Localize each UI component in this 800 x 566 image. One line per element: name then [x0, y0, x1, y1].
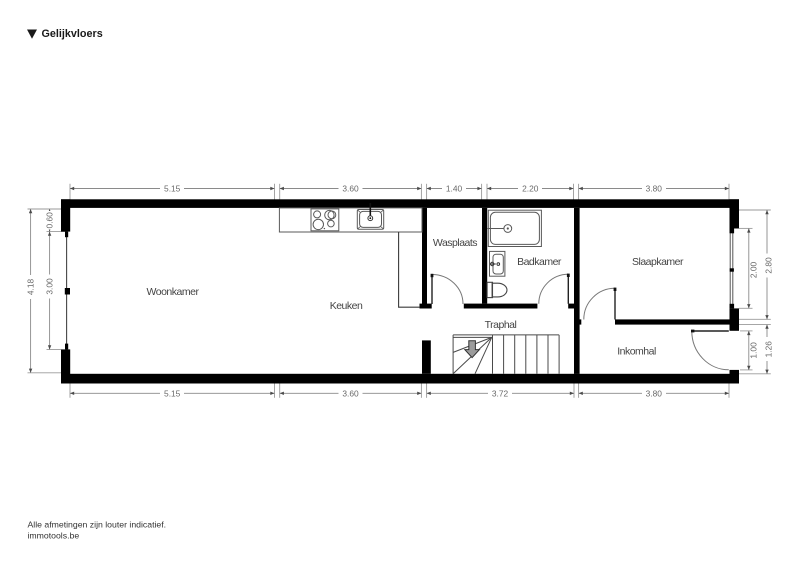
- svg-text:3.80: 3.80: [646, 184, 663, 194]
- svg-text:2.80: 2.80: [763, 257, 773, 274]
- svg-text:Badkamer: Badkamer: [517, 256, 562, 268]
- svg-text:Keuken: Keuken: [330, 300, 363, 312]
- svg-text:Inkomhal: Inkomhal: [617, 346, 656, 358]
- svg-text:4.18: 4.18: [26, 279, 36, 296]
- svg-text:immotools.be: immotools.be: [28, 531, 80, 541]
- svg-text:3.60: 3.60: [342, 184, 359, 194]
- svg-text:Slaapkamer: Slaapkamer: [632, 256, 684, 268]
- svg-text:Gelijkvloers: Gelijkvloers: [42, 28, 103, 40]
- svg-text:0.60: 0.60: [45, 212, 55, 229]
- svg-text:2.00: 2.00: [748, 262, 758, 279]
- svg-text:Wasplaats: Wasplaats: [433, 237, 477, 249]
- svg-text:2.20: 2.20: [522, 184, 539, 194]
- svg-text:Woonkamer: Woonkamer: [147, 286, 200, 298]
- svg-text:Traphal: Traphal: [485, 319, 517, 331]
- svg-text:3.80: 3.80: [646, 388, 663, 398]
- svg-text:5.15: 5.15: [164, 388, 181, 398]
- svg-text:5.15: 5.15: [164, 184, 181, 194]
- svg-text:Alle afmetingen zijn louter in: Alle afmetingen zijn louter indicatief.: [28, 520, 167, 530]
- svg-text:3.72: 3.72: [492, 388, 509, 398]
- svg-text:1.26: 1.26: [763, 341, 773, 358]
- svg-text:1.00: 1.00: [748, 342, 758, 359]
- svg-text:3.60: 3.60: [342, 388, 359, 398]
- svg-text:3.00: 3.00: [45, 278, 55, 295]
- svg-text:1.40: 1.40: [446, 184, 463, 194]
